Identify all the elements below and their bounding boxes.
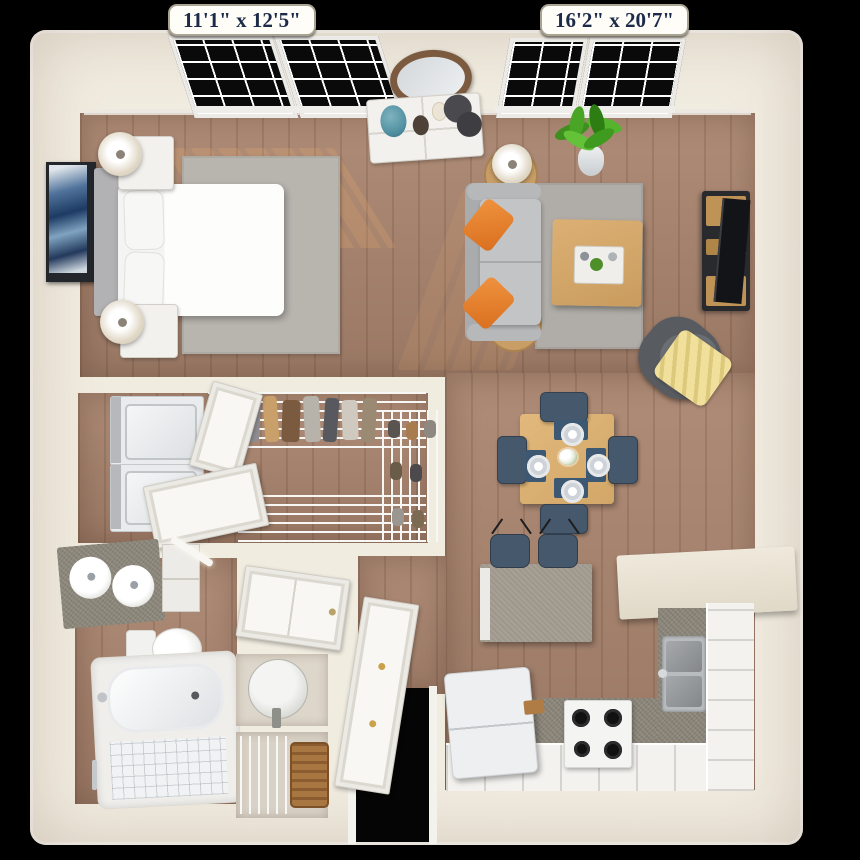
shoe: [406, 422, 418, 440]
burner: [604, 741, 622, 759]
burner: [574, 741, 590, 757]
shoe: [424, 420, 436, 438]
shoe: [412, 510, 424, 528]
living-room-dimension-label: 16'2" x 20'7": [540, 4, 689, 36]
bathtub: [90, 650, 244, 809]
sink-basin: [666, 676, 702, 707]
storage-closet: [236, 732, 328, 818]
table-lamp: [492, 144, 532, 184]
accent-chair: [632, 306, 732, 398]
potted-plant: [552, 102, 624, 176]
dining-chair: [540, 392, 588, 422]
burner: [572, 709, 590, 727]
living-window: [497, 38, 680, 112]
shoe: [390, 462, 402, 480]
shoe: [388, 420, 400, 438]
clothing-item: [341, 400, 358, 441]
tray-cup: [608, 252, 617, 261]
dark-vase: [412, 115, 429, 136]
table-lamp: [98, 132, 142, 176]
door-hinge: [369, 720, 377, 728]
double-sink: [662, 636, 706, 712]
shower-floor-tile: [110, 736, 229, 800]
linen-closet-door: [236, 565, 351, 651]
clothing-item: [281, 400, 300, 443]
dinner-plate: [527, 455, 550, 478]
dining-chair: [608, 436, 638, 484]
table-lamp: [100, 300, 144, 344]
lamp-finial: [118, 318, 127, 327]
bar-stool: [490, 534, 530, 568]
flower-centerpiece: [559, 449, 577, 465]
kitchen-island: [480, 564, 592, 642]
sofa-armrest: [467, 324, 541, 341]
water-heater-closet: [236, 654, 328, 726]
lamp-finial: [116, 150, 125, 159]
kitchen-cabinets-right: [706, 603, 754, 791]
sofa-armrest: [467, 183, 541, 200]
sink-basin: [666, 641, 702, 672]
bed-headboard: [94, 168, 120, 316]
bar-stool: [538, 534, 578, 568]
island-side-panel: [480, 568, 490, 640]
bedroom-dimension-label: 11'1" x 12'5": [168, 4, 316, 36]
clothing-item: [303, 396, 321, 443]
wall-art-canvas: [49, 165, 87, 273]
storage-basket: [290, 742, 329, 808]
washer-door: [125, 404, 197, 460]
clothing-item: [361, 398, 377, 443]
refrigerator: [444, 666, 539, 779]
clothing-item: [322, 398, 339, 443]
storage-wire-shelf: [240, 736, 292, 814]
coffee-table: [551, 219, 642, 307]
bed-pillow: [123, 189, 165, 250]
dryer-hinge-seam: [111, 465, 121, 529]
hanging-clothes: [244, 394, 384, 448]
teal-vase: [379, 104, 407, 138]
entry-door-frame: [429, 686, 437, 844]
tv-console: [702, 191, 750, 311]
shoes: [386, 418, 442, 534]
range-stove: [564, 700, 632, 768]
washer: [110, 396, 204, 466]
dresser: [366, 92, 484, 164]
tub-basin: [106, 662, 225, 734]
dinner-plate: [561, 423, 584, 446]
decor-plate: [456, 111, 483, 138]
heater-pipe: [272, 708, 281, 728]
door-hinge: [378, 662, 386, 670]
burner: [604, 709, 622, 727]
shoe: [410, 464, 422, 482]
door-knob: [328, 608, 336, 616]
dinner-plate: [561, 480, 584, 503]
cutting-board: [523, 699, 544, 715]
bathroom-vanity: [57, 539, 166, 630]
wall-art: [46, 162, 96, 282]
floor-plan-canvas: 11'1" x 12'5" 16'2" x 20'7": [0, 0, 860, 860]
washer-hinge-seam: [111, 397, 121, 463]
dinner-plate: [587, 454, 610, 477]
lamp-finial: [508, 160, 517, 169]
dining-chair: [497, 436, 527, 484]
faucet: [658, 669, 667, 678]
clothing-item: [262, 396, 279, 443]
shoe: [392, 508, 404, 526]
tub-faucet: [97, 692, 108, 703]
sofa: [465, 183, 543, 341]
towel-bar: [92, 760, 97, 790]
